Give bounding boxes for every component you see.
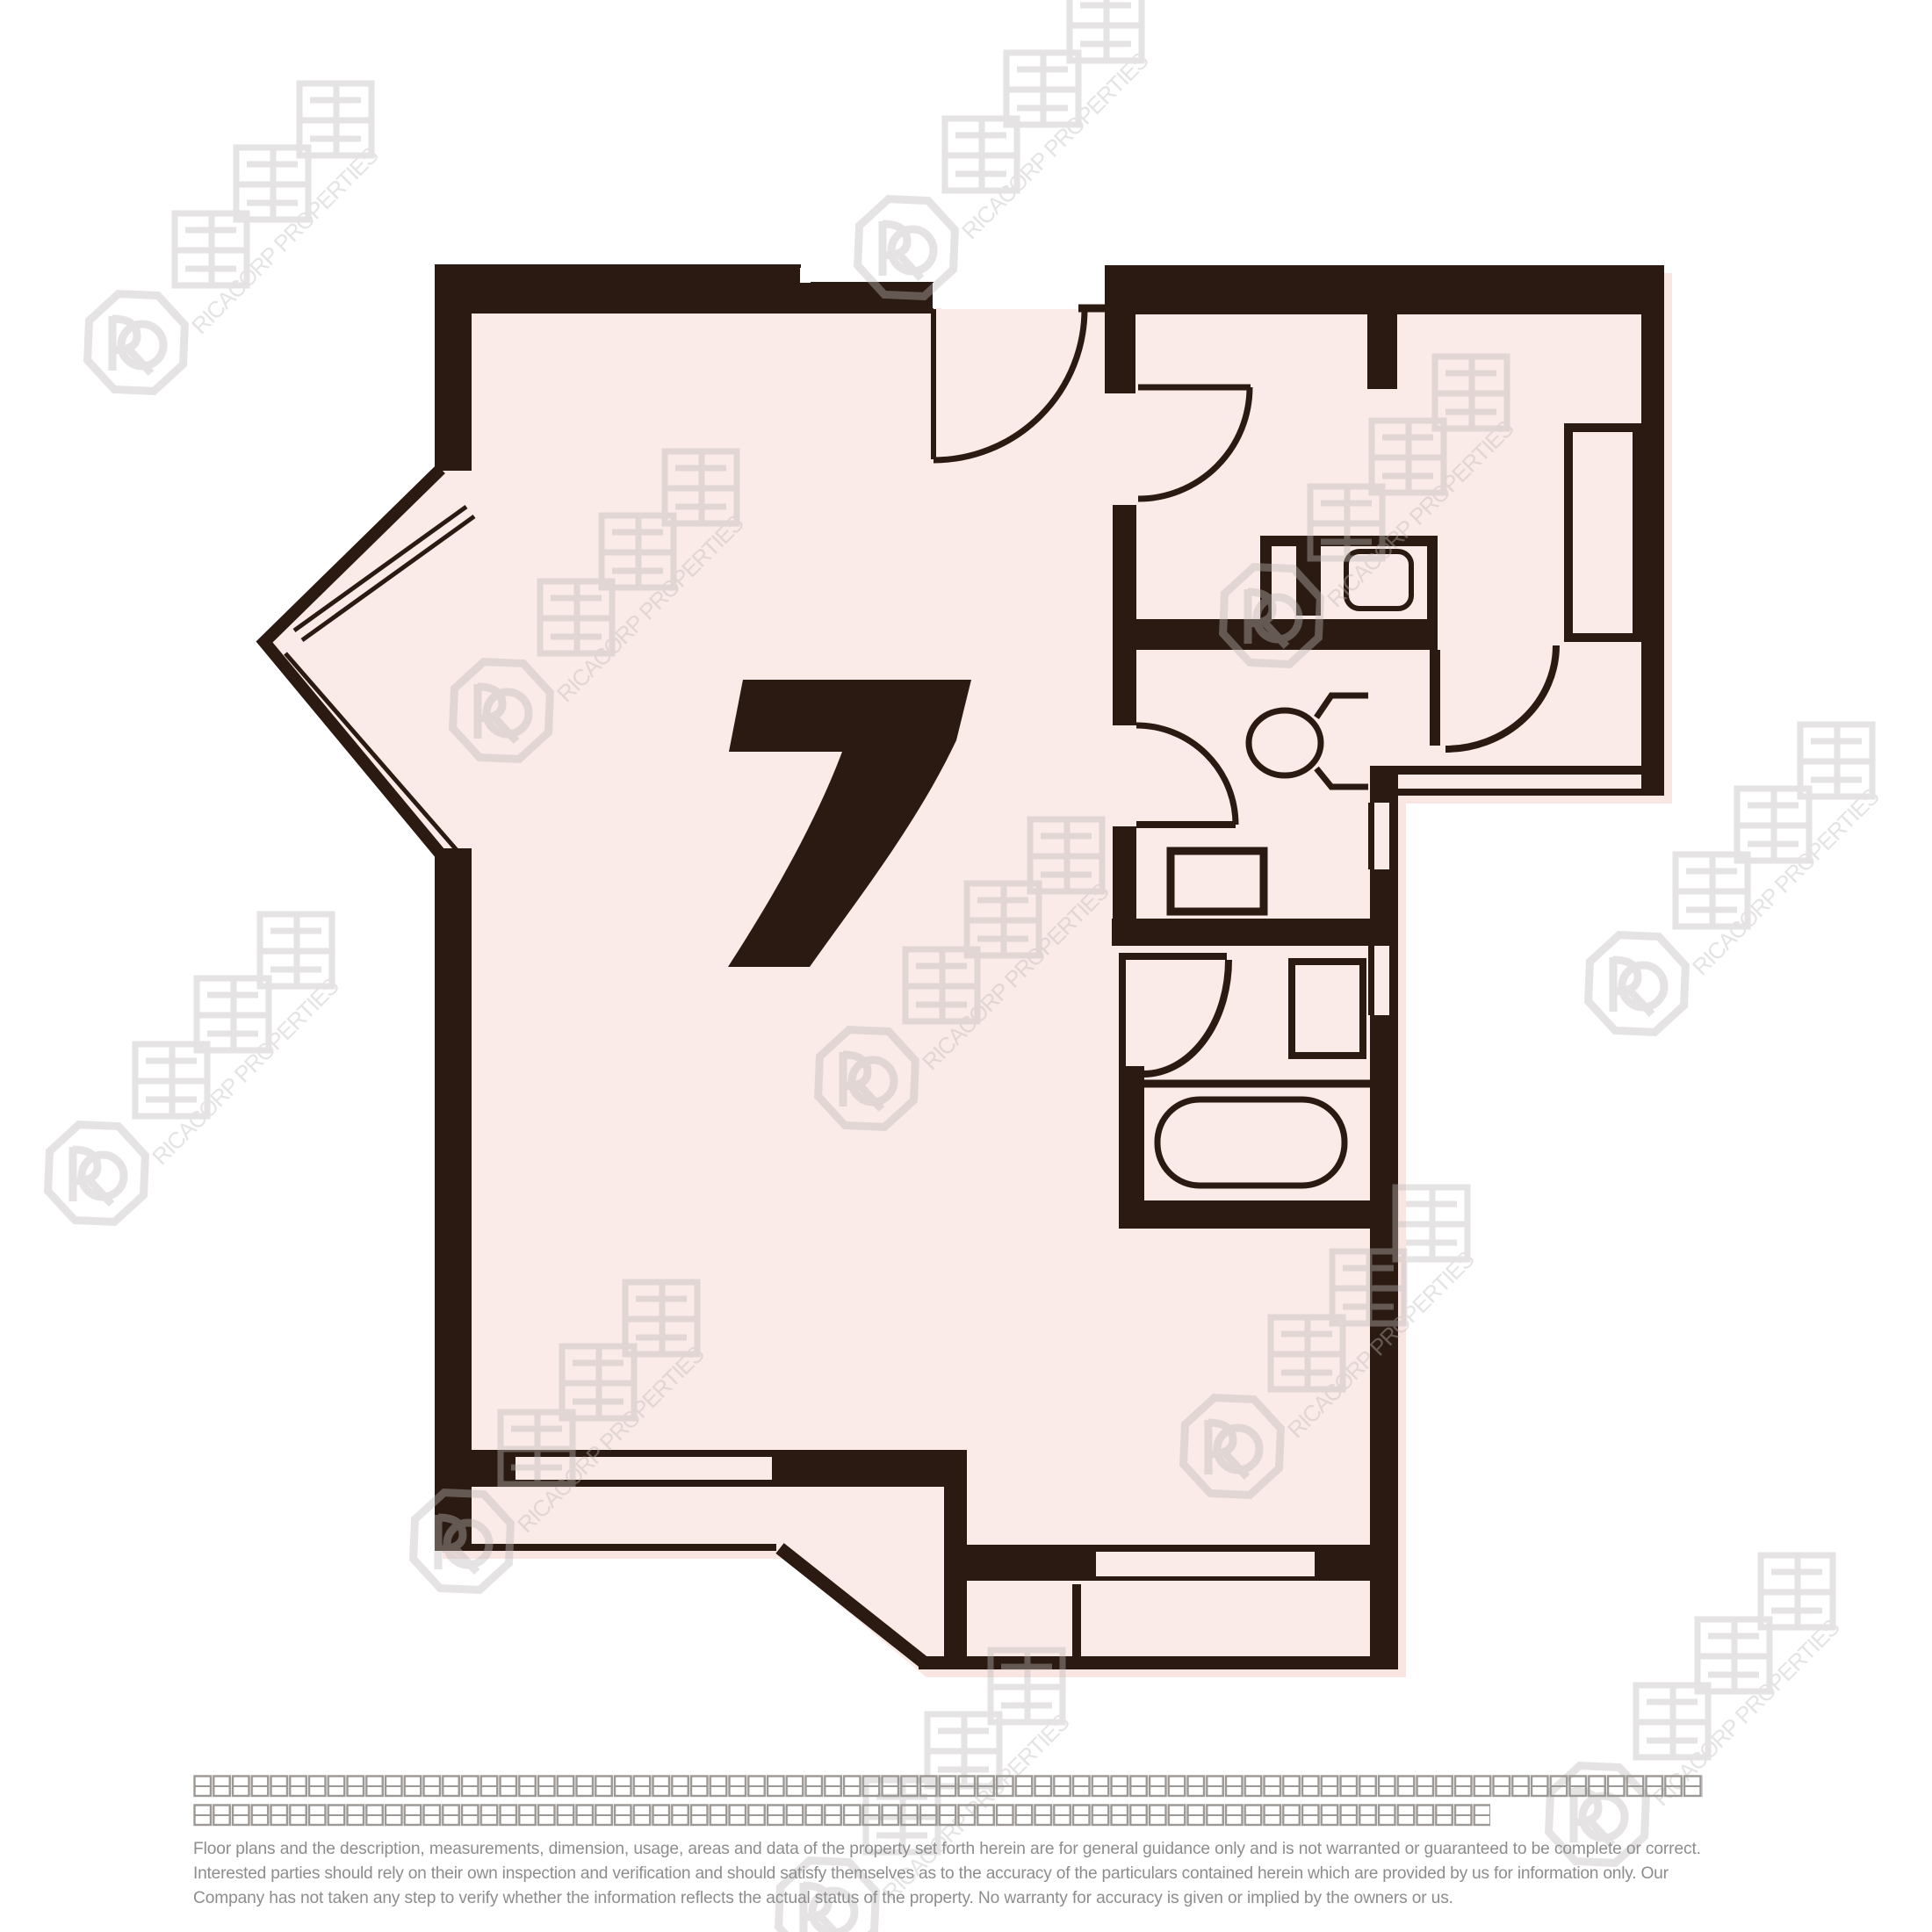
- svg-text:Floor plans and the descriptio: Floor plans and the description, measure…: [193, 1840, 1701, 1858]
- svg-text:Interested parties should rely: Interested parties should rely on their …: [193, 1864, 1669, 1883]
- svg-text:Company has not taken any step: Company has not taken any step to verify…: [193, 1889, 1453, 1907]
